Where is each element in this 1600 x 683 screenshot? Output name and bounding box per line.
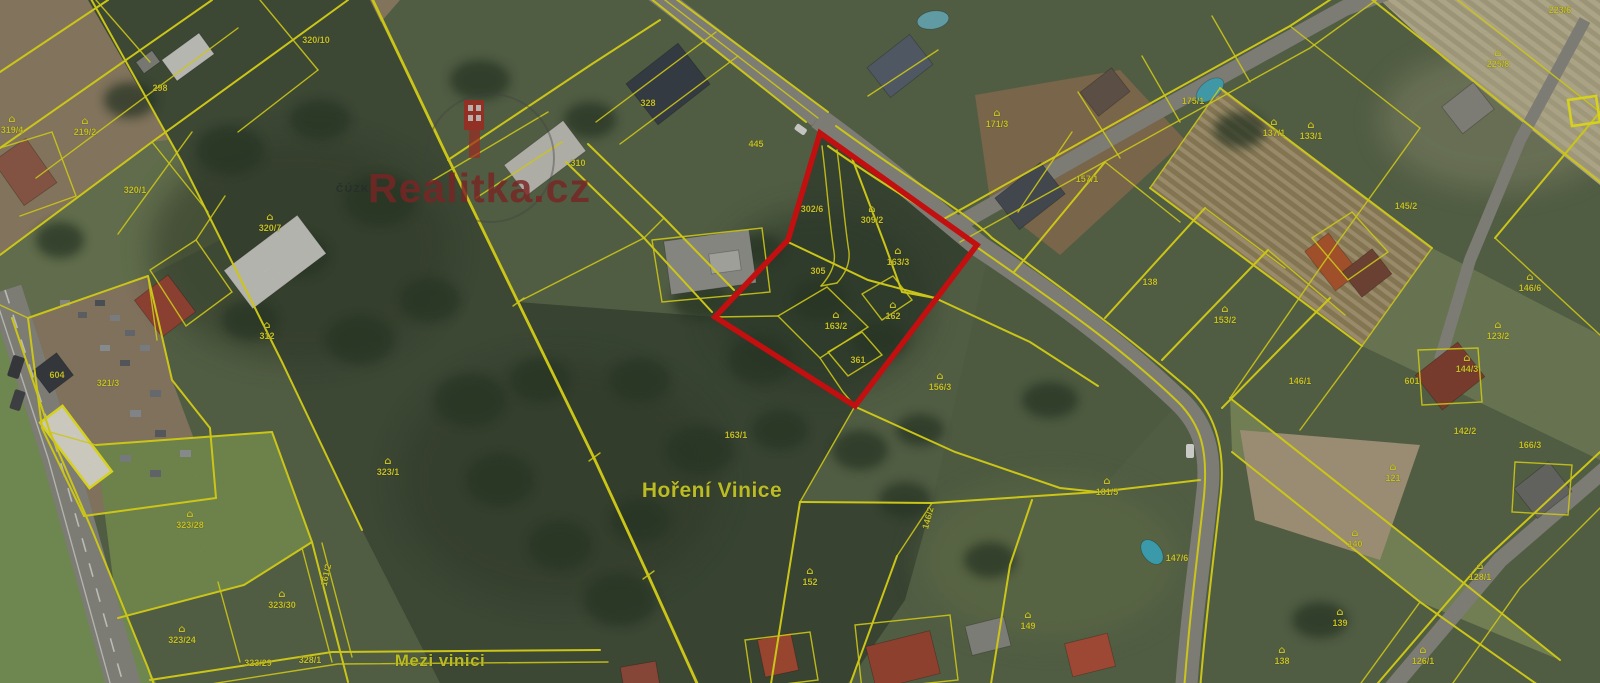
cadastral-aerial-map[interactable]: 320/10298⌂319/4⌂219/2320/1⌂320/7⌂312321/… (0, 0, 1600, 683)
photo-grain (0, 0, 1600, 683)
cadastral-map-viewport[interactable]: 320/10298⌂319/4⌂219/2320/1⌂320/7⌂312321/… (0, 0, 1600, 683)
